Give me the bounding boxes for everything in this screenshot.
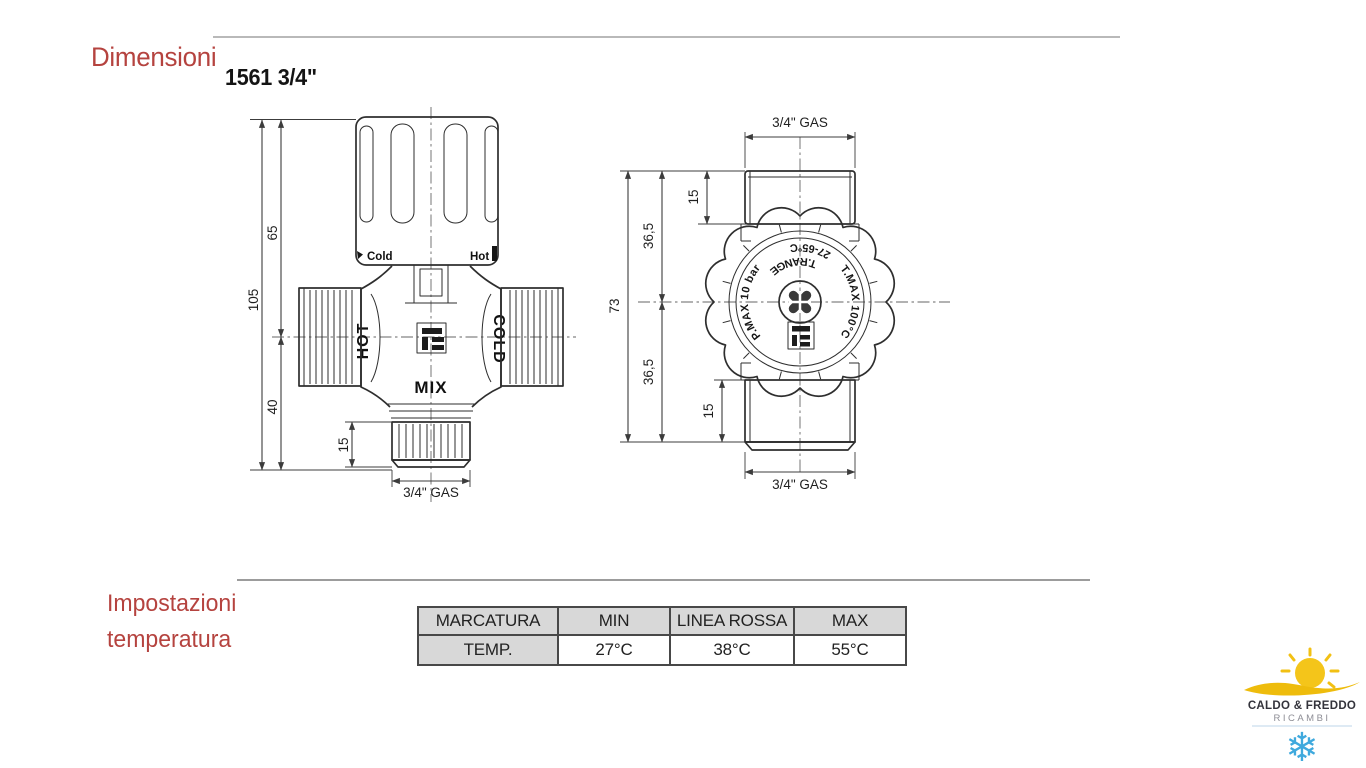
temperature-section-line1: Impostazioni <box>107 586 236 622</box>
dim-15-bottom: 15 <box>701 403 716 418</box>
cold-port-label: COLD <box>490 314 507 363</box>
valve-dimension-drawing: Cold Hot HOT C <box>238 95 960 510</box>
knob-text-trange: T.RANGE <box>767 255 818 278</box>
logo-company-name: CALDO & FREDDO <box>1248 700 1356 712</box>
front-left-port <box>299 288 361 386</box>
snowflake-icon: ❄ <box>1285 725 1319 767</box>
dim-15-top: 15 <box>686 189 701 204</box>
top-view-drawing: P.MAX 10 bar T.MAX 100°C 27-65°C T.RANGE… <box>607 115 950 492</box>
temperature-section-line2: temperatura <box>107 622 236 658</box>
top-divider-line <box>213 36 1120 38</box>
knob-clover-icon <box>787 289 813 315</box>
knob-hot-label: Hot <box>470 251 489 263</box>
dim-15-front: 15 <box>336 437 351 452</box>
dim-65: 65 <box>265 225 280 240</box>
hot-indicator-mark <box>492 246 497 261</box>
header-linea-rossa: LINEA ROSSA <box>670 607 794 635</box>
svg-text:T.RANGE: T.RANGE <box>767 255 818 278</box>
product-code: 1561 3/4" <box>225 64 317 91</box>
header-marcatura: MARCATURA <box>418 607 558 635</box>
dim-73: 73 <box>607 298 622 313</box>
dim-365-lower: 36,5 <box>641 359 656 385</box>
page-title: Dimensioni <box>91 42 216 73</box>
dim-gas-bottom: 3/4" GAS <box>772 477 828 492</box>
hot-port-label: HOT <box>355 323 372 360</box>
cell-temp-min: 27°C <box>558 635 670 665</box>
cell-temp-label: TEMP. <box>418 635 558 665</box>
header-max: MAX <box>794 607 906 635</box>
dim-40: 40 <box>265 399 280 414</box>
sun-icon <box>1244 649 1360 696</box>
cell-temp-linea-rossa: 38°C <box>670 635 794 665</box>
front-view-drawing: Cold Hot HOT C <box>246 107 576 502</box>
cold-indicator-arrow <box>357 251 363 259</box>
cell-temp-max: 55°C <box>794 635 906 665</box>
mix-port-label: MIX <box>414 378 447 397</box>
front-dimensions: 105 65 40 15 3/4" GAS <box>246 120 470 501</box>
bottom-divider-line <box>237 579 1090 581</box>
front-bottom-port <box>392 422 470 467</box>
knob-cold-label: Cold <box>367 251 393 263</box>
dim-105: 105 <box>246 289 261 312</box>
table-header-row: MARCATURA MIN LINEA ROSSA MAX <box>418 607 906 635</box>
dim-gas-front: 3/4" GAS <box>403 485 459 500</box>
temperature-table: MARCATURA MIN LINEA ROSSA MAX TEMP. 27°C… <box>417 606 907 666</box>
header-min: MIN <box>558 607 670 635</box>
table-row: TEMP. 27°C 38°C 55°C <box>418 635 906 665</box>
brand-mark-front <box>417 323 446 353</box>
logo-subtitle: RICAMBI <box>1273 713 1330 724</box>
temperature-section-title: Impostazioni temperatura <box>107 586 236 658</box>
dim-gas-top: 3/4" GAS <box>772 115 828 130</box>
brand-mark-top <box>788 322 814 349</box>
dim-365-upper: 36,5 <box>641 223 656 249</box>
company-logo: CALDO & FREDDO RICAMBI ❄ <box>1238 645 1366 767</box>
front-knob: Cold Hot <box>356 117 498 265</box>
